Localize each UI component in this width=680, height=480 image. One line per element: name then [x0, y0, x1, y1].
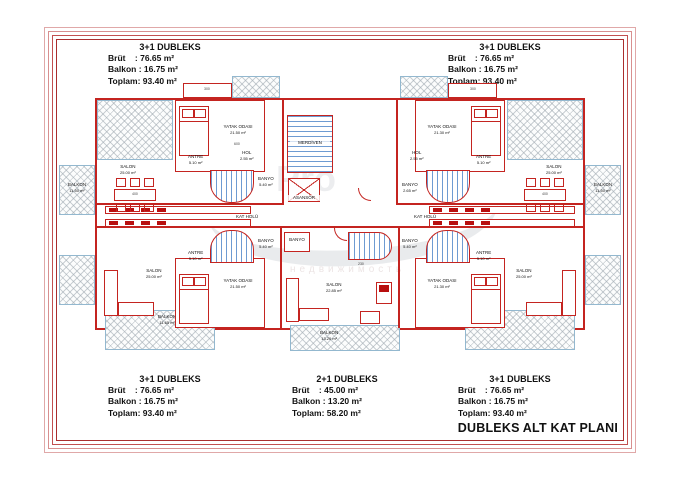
bedroom-lower-right-label: YATAK ODASI21.30 m² [414, 278, 470, 289]
brut-line: Brüt : 76.65 m² [458, 385, 582, 396]
pillow [194, 277, 206, 286]
unit-type-label: 3+1 DUBLEKS [458, 374, 582, 384]
balcony-right-label: BALKON11.50 m² [587, 182, 619, 193]
unit-2p1-wall-left [280, 228, 282, 328]
bedroom-lower-left-label: YATAK ODASI21.50 m² [210, 278, 266, 289]
salon-upper-left-label: SALON25.00 m² [120, 164, 136, 175]
unit-stair-2p1 [348, 232, 392, 260]
kitchen-unit [465, 221, 474, 225]
top-balcony-left-hatch [232, 76, 280, 98]
chair [116, 203, 126, 212]
bed [179, 274, 209, 324]
kitchen-unit [449, 208, 458, 212]
balcony-right-lower [585, 255, 621, 305]
dimension-label: 400 [542, 192, 548, 196]
asansor-label: ASANSÖR [286, 195, 322, 201]
desk [360, 311, 380, 324]
banyo-2p1-label: BANYO [284, 237, 310, 243]
blanket-line [180, 121, 208, 122]
balcony-left-label: BALKON11.50 m² [61, 182, 93, 193]
unit-2p1-wall-right [398, 228, 400, 328]
blanket-line [180, 289, 208, 290]
salon-2p1-label: SALON22.85 m² [326, 282, 342, 293]
kitchen-strip-lower-left [105, 219, 251, 227]
info-block-bottom-right: 3+1 DUBLEKS Brüt : 76.65 m² Balkon : 16.… [458, 374, 582, 419]
merdiven-label: MERDİVEN [290, 140, 330, 146]
pillow [486, 277, 498, 286]
chair [540, 178, 550, 187]
chair [526, 203, 536, 212]
kitchen-unit [433, 208, 442, 212]
kitchen-unit [465, 208, 474, 212]
banyo-upper-left-label: BANYO5.40 m² [258, 176, 274, 187]
sofa [104, 270, 118, 316]
toplam-line: Toplam: 93.40 m² [108, 408, 232, 419]
unit-type-label: 3+1 DUBLEKS [108, 42, 232, 52]
toplam-line: Toplam: 58.20 m² [292, 408, 402, 419]
balcony-bottom-center-label: BALKON13.20 m² [320, 330, 338, 341]
sofa [286, 278, 299, 322]
chair [144, 203, 154, 212]
kitchen-unit [157, 208, 166, 212]
chair [554, 178, 564, 187]
unit-stair-lower-left [210, 230, 254, 263]
dimension-label: 300 [470, 87, 476, 91]
antre-upper-right-label: ANTRE5.10 m² [476, 154, 491, 165]
balkon-line: Balkon : 16.75 m² [458, 396, 582, 407]
brut-line: Brüt : 76.65 m² [108, 53, 232, 64]
sofa [299, 308, 329, 321]
kitchen-strip-lower-right [429, 219, 575, 227]
balcony-top-left-corner [97, 100, 173, 160]
brut-line: Brüt : 76.65 m² [108, 385, 232, 396]
unit-stair-lower-right [426, 230, 470, 263]
dimension-label: 230 [358, 262, 364, 266]
banyo-small-label: BANYO2.65 m² [402, 182, 418, 193]
bed [471, 274, 501, 324]
balkon-line: Balkon : 16.75 m² [108, 396, 232, 407]
balkon-line: Balkon : 16.75 m² [108, 64, 232, 75]
bed [179, 106, 209, 156]
blanket-line [472, 289, 500, 290]
chair [144, 178, 154, 187]
bedroom-upper-right-label: YATAK ODASI21.30 m² [414, 124, 470, 135]
unit-type-label: 2+1 DUBLEKS [292, 374, 402, 384]
info-block-bottom-left: 3+1 DUBLEKS Brüt : 76.65 m² Balkon : 16.… [108, 374, 232, 419]
drawing-title: DUBLEKS ALT KAT PLANI [440, 421, 618, 435]
core-wall-right [396, 98, 398, 205]
kitchen-unit [481, 221, 490, 225]
salon-upper-right-label: SALON25.00 m² [546, 164, 562, 175]
chair [116, 178, 126, 187]
blanket-line [472, 121, 500, 122]
banyo-lower-right-label: BANYO5.40 m² [402, 238, 418, 249]
bed [471, 106, 501, 156]
floorplan-drawing: Pro недвижимость BALKON11.50 m² BALKON11… [58, 92, 622, 362]
kitchen-unit [481, 208, 490, 212]
balcony-bottom-center [290, 325, 400, 351]
hol-upper-left-label: HOL2.55 m² [240, 150, 254, 161]
brut-line: Brüt : 76.65 m² [448, 53, 572, 64]
chair [554, 203, 564, 212]
chair [540, 203, 550, 212]
brut-line: Brüt : 45.00 m² [292, 385, 402, 396]
pillow [194, 109, 206, 118]
floorplan-sheet: 3+1 DUBLEKS Brüt : 76.65 m² Balkon : 16.… [0, 0, 680, 480]
toplam-line: Toplam: 93.40 m² [458, 408, 582, 419]
top-balcony-right-hatch [400, 76, 448, 98]
balcony-left-lower [59, 255, 95, 305]
sofa [118, 302, 154, 316]
chair [526, 178, 536, 187]
dimension-label: 300 [204, 87, 210, 91]
chair [130, 203, 140, 212]
kitchen-unit [109, 221, 118, 225]
kitchen-unit [141, 221, 150, 225]
pillow [182, 109, 194, 118]
info-block-top-left: 3+1 DUBLEKS Brüt : 76.65 m² Balkon : 16.… [108, 42, 232, 87]
sofa [562, 270, 576, 316]
kitchen-unit [449, 221, 458, 225]
sofa [526, 302, 562, 316]
pillow [486, 109, 498, 118]
dimension-label: 400 [132, 192, 138, 196]
pillow [474, 277, 486, 286]
info-block-bottom-center: 2+1 DUBLEKS Brüt : 45.00 m² Balkon : 13.… [292, 374, 402, 419]
balkon-line: Balkon : 13.20 m² [292, 396, 402, 407]
bedroom-upper-left-label: YATAK ODASI21.50 m² [210, 124, 266, 135]
salon-lower-left-label: SALON25.00 m² [146, 268, 162, 279]
balcony-bottom-left-label: BALKON11.65 m² [158, 314, 176, 325]
pillow [182, 277, 194, 286]
unit-type-label: 3+1 DUBLEKS [108, 374, 232, 384]
unit-type-label: 3+1 DUBLEKS [448, 42, 572, 52]
kitchen-unit [125, 221, 134, 225]
hol-upper-right-label: HOL2.55 m² [410, 150, 424, 161]
antre-lower-left-label: ANTRE5.10 m² [188, 250, 203, 261]
banyo-lower-left-label: BANYO5.40 m² [258, 238, 274, 249]
antre-upper-left-label: ANTRE5.10 m² [188, 154, 203, 165]
dimension-label: 600 [234, 142, 240, 146]
kitchen-unit [433, 221, 442, 225]
balcony-top-right-corner [507, 100, 583, 160]
pillow [474, 109, 486, 118]
kitchen-unit [157, 221, 166, 225]
kitchen-unit [379, 285, 389, 292]
balkon-line: Balkon : 16.75 m² [448, 64, 572, 75]
info-block-top-right: 3+1 DUBLEKS Brüt : 76.65 m² Balkon : 16.… [448, 42, 572, 87]
chair [130, 178, 140, 187]
antre-lower-right-label: ANTRE5.10 m² [476, 250, 491, 261]
salon-lower-right-label: SALON25.00 m² [516, 268, 532, 279]
core-wall-left [282, 98, 284, 205]
